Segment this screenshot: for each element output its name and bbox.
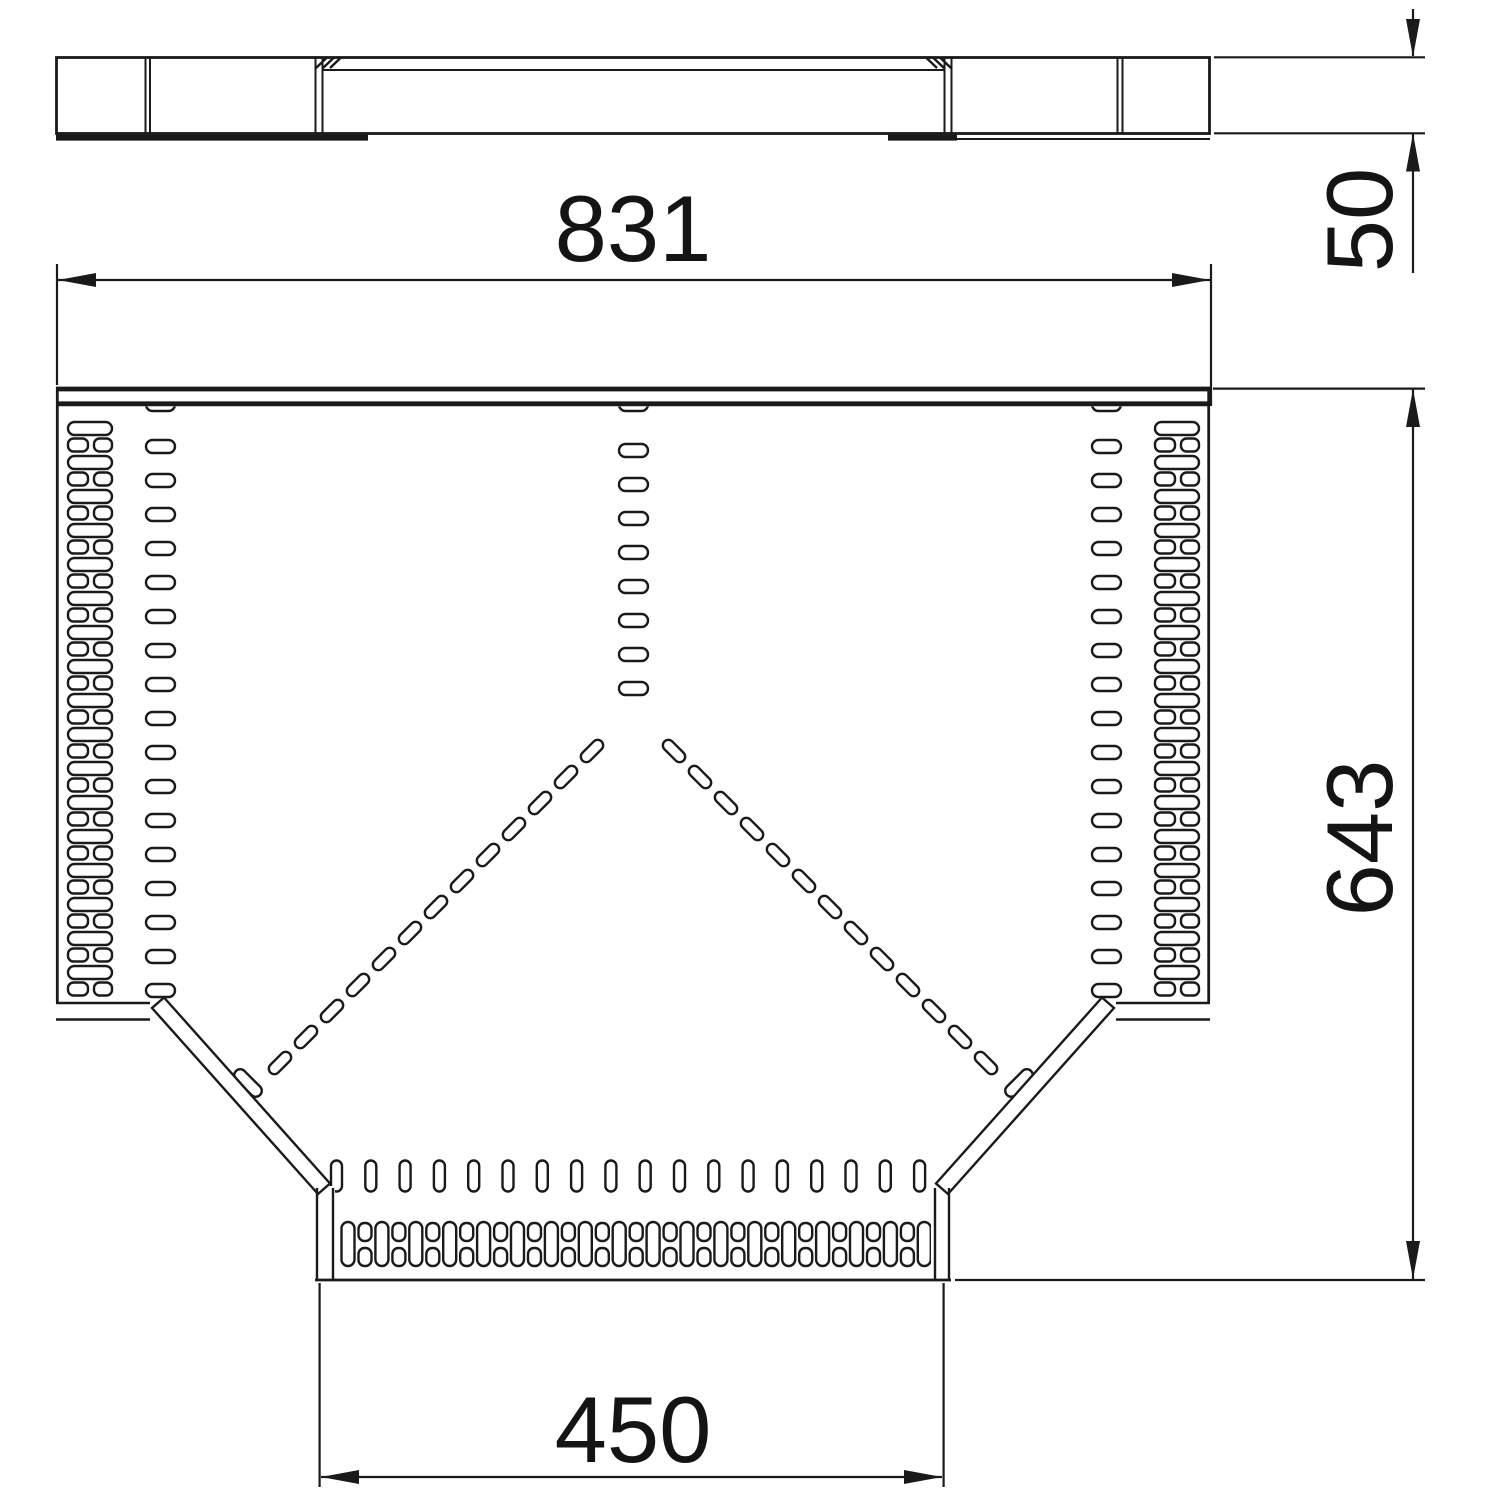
perforation-slot — [94, 439, 112, 452]
perforation-slot — [1181, 983, 1199, 996]
perforation-slot — [1092, 610, 1121, 623]
perforation-slot — [423, 894, 450, 921]
weld-hatch-right — [926, 58, 951, 69]
perforation-slot — [664, 1223, 677, 1241]
perforation-slot — [527, 790, 554, 817]
perforation-slot — [664, 1248, 677, 1266]
perforation-slot — [562, 1223, 575, 1241]
perforation-slot — [739, 816, 766, 843]
perforation-slot — [713, 790, 740, 817]
perforation-slot — [1155, 439, 1175, 452]
perforation-slot — [146, 542, 175, 555]
perforation-slot — [68, 541, 88, 554]
perforation-slot — [619, 614, 648, 627]
perforation-slot — [579, 1222, 592, 1266]
perforation-slot — [1092, 848, 1121, 861]
perforation-slot — [708, 1161, 719, 1192]
perforation-slot — [68, 422, 112, 435]
perforation-slot — [630, 1223, 643, 1241]
perforation-slot — [68, 473, 88, 486]
perforation-slot — [799, 1248, 812, 1266]
perforation-slot — [68, 864, 112, 877]
perforation-slot — [1155, 694, 1199, 707]
perforation-slot — [1092, 916, 1121, 929]
perforation-slot — [1155, 949, 1175, 962]
perforation-slot — [1092, 746, 1121, 759]
perforation-slot — [146, 712, 175, 725]
perforation-slot — [1092, 542, 1121, 555]
perforation-slot — [681, 1222, 694, 1266]
perforation-slot — [94, 949, 112, 962]
perforation-slot — [605, 1161, 616, 1192]
perforation-slot — [846, 1161, 857, 1192]
perforation-slot — [68, 983, 88, 996]
perforation-slot — [867, 1223, 880, 1241]
perforation-slot — [777, 1161, 788, 1192]
perforation-slot — [743, 1161, 754, 1192]
right-chamfer-rail-fill — [936, 998, 1114, 1195]
perforation-slot — [1155, 490, 1199, 503]
perforation-slot — [816, 1222, 829, 1266]
perforation-slot — [68, 915, 88, 928]
perforation-slot — [901, 1248, 914, 1266]
perforation-slot — [94, 507, 112, 520]
perforation-slot — [449, 868, 476, 895]
perforation-slot — [1155, 541, 1175, 554]
perforation-slot — [613, 1222, 626, 1266]
perforation-slot — [146, 440, 175, 453]
perforation-slot — [843, 920, 870, 947]
perforation-slot — [68, 779, 88, 792]
perforation-slot — [1155, 524, 1199, 537]
perforation-slot — [782, 1222, 795, 1266]
perforation-slot — [1092, 440, 1121, 453]
perforation-slot — [1155, 677, 1175, 690]
perforation-slot — [68, 847, 88, 860]
perforation-slot — [880, 1161, 891, 1192]
perforation-slot — [1155, 762, 1199, 775]
perforation-slot — [1155, 473, 1175, 486]
dimension-branch-width: 450 — [320, 1283, 944, 1487]
perforation-slot — [68, 932, 112, 945]
perforation-slot — [1181, 473, 1199, 486]
perforation-slot — [94, 473, 112, 486]
perforation-slot — [1155, 660, 1199, 673]
perforation-slot — [1092, 576, 1121, 589]
perforation-slot — [731, 1248, 744, 1266]
perforation-slot — [918, 1222, 931, 1266]
rail-fills — [56, 385, 1210, 1281]
perforation-slot — [799, 1223, 812, 1241]
perforation-slot — [1181, 711, 1199, 724]
perforation-slot — [1155, 728, 1199, 741]
perforation-slot — [94, 745, 112, 758]
perforation-slot — [619, 682, 648, 695]
perforation-slot — [1155, 711, 1175, 724]
dim-label-overall-width: 831 — [555, 176, 712, 281]
arrowhead — [1406, 19, 1420, 57]
perforation-slot — [596, 1248, 609, 1266]
perforation-slot — [1092, 882, 1121, 895]
perforation-slot — [365, 1161, 376, 1192]
perforation-slot — [146, 916, 175, 929]
perforation-slot — [1181, 609, 1199, 622]
perforation-slot — [1155, 626, 1199, 639]
perforation-slot — [698, 1248, 711, 1266]
perforation-slot — [293, 1024, 320, 1051]
perforation-slot — [619, 512, 648, 525]
perforation-slot — [503, 1161, 514, 1192]
perforation-slot — [68, 966, 112, 979]
dim-label-branch-width: 450 — [555, 1377, 712, 1482]
perforation-slot — [146, 678, 175, 691]
perforation-slot — [400, 1161, 411, 1192]
perforation-slot — [468, 1161, 479, 1192]
perforation-slot — [687, 764, 714, 791]
perforation-slot — [1155, 643, 1175, 656]
perforation-slot — [791, 868, 818, 895]
perforation-slot — [1181, 677, 1199, 690]
perforation-slot — [146, 576, 175, 589]
dim-label-rail-height: 50 — [1307, 168, 1412, 273]
perforation-slot — [68, 592, 112, 605]
rail-lines — [56, 389, 1210, 1281]
perforation-slot — [630, 1248, 643, 1266]
perforation-slot — [1155, 813, 1175, 826]
perforation-slot — [477, 1222, 490, 1266]
perforation-slot — [267, 1050, 294, 1077]
perforation-slot — [1155, 830, 1199, 843]
perforation-slot — [1155, 881, 1175, 894]
perforation-slot — [460, 1248, 473, 1266]
perforation-slot — [1092, 678, 1121, 691]
perforation-slot — [68, 609, 88, 622]
perforation-slot — [68, 745, 88, 758]
perforation-slot — [1092, 780, 1121, 793]
perforation-slot — [1155, 864, 1199, 877]
perforation-slot — [619, 580, 648, 593]
perforation-slot — [494, 1223, 507, 1241]
perforation-slot — [1155, 779, 1175, 792]
arrowhead — [1406, 1241, 1420, 1279]
perforation-slot — [392, 1248, 405, 1266]
perforation-slot — [765, 1248, 778, 1266]
perforation-slot — [1155, 575, 1175, 588]
perforation-slot — [748, 1222, 761, 1266]
perforation-slot — [619, 478, 648, 491]
perforation-slot — [1155, 422, 1199, 435]
perforation-slot — [443, 1222, 456, 1266]
perforation-slot — [94, 983, 112, 996]
perforation-slot — [68, 711, 88, 724]
perforation-slot — [475, 842, 502, 869]
perforation-pattern — [68, 398, 1199, 1266]
perforation-slot — [94, 813, 112, 826]
arrowhead — [1406, 134, 1420, 172]
perforation-slot — [146, 746, 175, 759]
perforation-slot — [1181, 541, 1199, 554]
perforation-slot — [579, 738, 606, 765]
perforation-slot — [94, 541, 112, 554]
perforation-slot — [345, 972, 372, 999]
perforation-slot — [146, 950, 175, 963]
perforation-slot — [146, 984, 175, 997]
perforation-slot — [94, 609, 112, 622]
perforation-slot — [146, 508, 175, 521]
perforation-slot — [94, 881, 112, 894]
perforation-slot — [1092, 950, 1121, 963]
perforation-slot — [1155, 898, 1199, 911]
arrowhead — [1172, 273, 1210, 287]
perforation-slot — [528, 1223, 541, 1241]
perforation-slot — [68, 524, 112, 537]
t-piece-technical-drawing: 831 50 643 450 — [0, 0, 1500, 1500]
arrowhead — [321, 1470, 359, 1484]
perforation-slot — [811, 1161, 822, 1192]
perforation-slot — [68, 439, 88, 452]
perforation-slot — [698, 1223, 711, 1241]
perforation-slot — [94, 643, 112, 656]
perforation-slot — [68, 643, 88, 656]
perforation-slot — [833, 1248, 846, 1266]
perforation-slot — [94, 677, 112, 690]
perforation-slot — [1181, 507, 1199, 520]
perforation-slot — [146, 610, 175, 623]
perforation-slot — [562, 1248, 575, 1266]
perforation-slot — [68, 507, 88, 520]
perforation-slot — [553, 764, 580, 791]
perforation-slot — [1181, 847, 1199, 860]
plan-view — [56, 385, 1210, 1281]
perforation-slot — [647, 1222, 660, 1266]
perforation-slot — [1181, 813, 1199, 826]
side-view — [56, 58, 1210, 140]
perforation-slot — [1092, 814, 1121, 827]
perforation-slot — [869, 946, 896, 973]
perforation-slot — [68, 660, 112, 673]
perforation-slot — [68, 898, 112, 911]
perforation-slot — [1155, 915, 1175, 928]
perforation-slot — [973, 1050, 1000, 1077]
perforation-slot — [94, 711, 112, 724]
dim-label-overall-depth: 643 — [1307, 760, 1412, 917]
dimension-overall-depth: 643 — [955, 389, 1425, 1280]
perforation-slot — [817, 894, 844, 921]
perforation-slot — [1155, 796, 1199, 809]
perforation-slot — [731, 1223, 744, 1241]
perforation-slot — [1155, 983, 1175, 996]
perforation-slot — [359, 1248, 372, 1266]
perforation-slot — [884, 1222, 897, 1266]
perforation-slot — [596, 1223, 609, 1241]
perforation-slot — [359, 1223, 372, 1241]
perforation-slot — [947, 1024, 974, 1051]
perforation-slot — [68, 456, 112, 469]
arrowhead — [904, 1470, 942, 1484]
perforation-slot — [68, 813, 88, 826]
perforation-slot — [68, 830, 112, 843]
plan-outline — [57, 387, 1208, 1280]
perforation-slot — [494, 1248, 507, 1266]
perforation-slot — [501, 816, 528, 843]
perforation-slot — [68, 575, 88, 588]
perforation-slot — [1155, 932, 1199, 945]
perforation-slot — [434, 1161, 445, 1192]
perforation-slot — [1181, 949, 1199, 962]
perforation-slot — [1155, 609, 1175, 622]
perforation-slot — [460, 1223, 473, 1241]
perforation-slot — [68, 881, 88, 894]
perforation-slot — [619, 648, 648, 661]
perforation-slot — [397, 920, 424, 947]
perforation-slot — [426, 1223, 439, 1241]
perforation-slot — [901, 1223, 914, 1241]
perforation-slot — [1155, 507, 1175, 520]
perforation-slot — [1092, 984, 1121, 997]
perforation-slot — [1092, 644, 1121, 657]
perforation-slot — [1181, 915, 1199, 928]
perforation-slot — [146, 780, 175, 793]
perforation-slot — [94, 575, 112, 588]
perforation-slot — [545, 1222, 558, 1266]
perforation-slot — [146, 814, 175, 827]
perforation-slot — [619, 444, 648, 457]
perforation-slot — [68, 949, 88, 962]
perforation-slot — [511, 1222, 524, 1266]
perforation-slot — [1181, 439, 1199, 452]
perforation-slot — [1092, 712, 1121, 725]
perforation-slot — [1181, 745, 1199, 758]
side-view-outline — [57, 58, 1210, 134]
perforation-slot — [146, 474, 175, 487]
perforation-slot — [1181, 643, 1199, 656]
perforation-slot — [392, 1223, 405, 1241]
left-chamfer-rail-fill — [152, 998, 330, 1195]
perforation-slot — [68, 694, 112, 707]
perforation-slot — [640, 1161, 651, 1192]
perforation-slot — [146, 882, 175, 895]
perforation-slot — [765, 842, 792, 869]
perforation-slot — [895, 972, 922, 999]
perforation-slot — [146, 848, 175, 861]
perforation-slot — [1155, 456, 1199, 469]
perforation-slot — [375, 1222, 388, 1266]
perforation-slot — [1155, 745, 1175, 758]
perforation-slot — [528, 1248, 541, 1266]
perforation-slot — [833, 1223, 846, 1241]
perforation-slot — [68, 728, 112, 741]
perforation-slot — [537, 1161, 548, 1192]
perforation-slot — [571, 1161, 582, 1192]
perforation-slot — [1181, 881, 1199, 894]
arrowhead — [58, 273, 96, 287]
dimension-rail-height: 50 — [1214, 9, 1425, 273]
dimension-overall-width: 831 — [57, 176, 1211, 406]
perforation-slot — [714, 1222, 727, 1266]
perforation-slot — [94, 847, 112, 860]
perforation-slot — [68, 762, 112, 775]
perforation-slot — [867, 1248, 880, 1266]
perforation-slot — [661, 738, 688, 765]
perforation-slot — [850, 1222, 863, 1266]
perforation-slot — [1155, 558, 1199, 571]
perforation-slot — [426, 1248, 439, 1266]
perforation-slot — [68, 796, 112, 809]
perforation-slot — [1092, 508, 1121, 521]
perforation-slot — [68, 558, 112, 571]
perforation-slot — [371, 946, 398, 973]
arrowhead — [1406, 389, 1420, 427]
perforation-slot — [68, 490, 112, 503]
perforation-slot — [146, 644, 175, 657]
perforation-slot — [674, 1161, 685, 1192]
perforation-slot — [1155, 592, 1199, 605]
perforation-slot — [342, 1222, 355, 1266]
weld-hatch-left — [316, 58, 341, 69]
perforation-slot — [319, 998, 346, 1025]
perforation-slot — [68, 677, 88, 690]
perforation-slot — [914, 1161, 925, 1192]
perforation-slot — [94, 779, 112, 792]
perforation-slot — [94, 915, 112, 928]
perforation-slot — [1155, 966, 1199, 979]
drawing-page: 831 50 643 450 — [0, 0, 1500, 1500]
perforation-slot — [921, 998, 948, 1025]
perforation-slot — [409, 1222, 422, 1266]
perforation-slot — [68, 626, 112, 639]
perforation-slot — [1155, 847, 1175, 860]
perforation-slot — [619, 546, 648, 559]
perforation-slot — [1181, 575, 1199, 588]
perforation-slot — [765, 1223, 778, 1241]
perforation-slot — [1092, 474, 1121, 487]
perforation-slot — [1181, 779, 1199, 792]
